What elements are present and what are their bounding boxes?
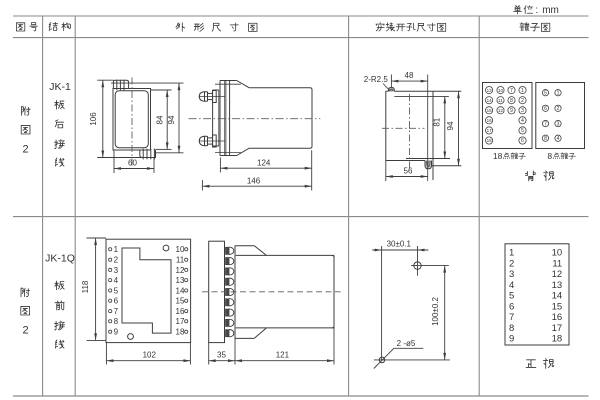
svg-text:60: 60 <box>128 159 137 168</box>
svg-text:4: 4 <box>521 118 524 124</box>
svg-text:1: 1 <box>557 90 560 96</box>
svg-text:16: 16 <box>552 312 563 323</box>
svg-text:10: 10 <box>176 245 185 254</box>
svg-text:5: 5 <box>509 291 514 302</box>
svg-text:9: 9 <box>510 108 513 114</box>
svg-text:4: 4 <box>509 280 514 291</box>
svg-text:17: 17 <box>487 128 493 133</box>
svg-text:1: 1 <box>509 248 514 259</box>
svg-text:1: 1 <box>521 88 524 94</box>
svg-text:12: 12 <box>176 266 185 275</box>
svg-text:2-R2.5: 2-R2.5 <box>364 75 389 84</box>
svg-text:13: 13 <box>552 280 563 291</box>
svg-text:35: 35 <box>217 351 226 360</box>
svg-text:17: 17 <box>552 323 563 334</box>
svg-text:11: 11 <box>552 258 562 269</box>
svg-text:121: 121 <box>276 351 290 360</box>
svg-text::: : <box>535 5 538 16</box>
svg-text:10: 10 <box>498 88 504 93</box>
svg-text:8: 8 <box>114 317 119 326</box>
svg-text:10: 10 <box>552 248 563 259</box>
svg-text:6: 6 <box>544 106 547 112</box>
svg-text:8: 8 <box>510 98 513 104</box>
svg-text:3: 3 <box>557 121 560 127</box>
svg-text:102: 102 <box>143 351 157 360</box>
svg-text:84: 84 <box>155 115 164 124</box>
svg-text:7: 7 <box>510 88 513 94</box>
svg-text:124: 124 <box>257 158 271 167</box>
svg-text:5: 5 <box>521 128 524 134</box>
svg-text:56: 56 <box>404 167 413 176</box>
svg-text:106: 106 <box>89 112 98 126</box>
svg-text:15: 15 <box>176 297 185 306</box>
svg-text:30±0.1: 30±0.1 <box>387 240 412 249</box>
svg-text:2: 2 <box>509 258 514 269</box>
svg-text:14: 14 <box>487 98 493 103</box>
svg-text:11: 11 <box>176 256 185 265</box>
svg-text:18: 18 <box>493 151 503 161</box>
svg-text:9: 9 <box>509 334 514 345</box>
svg-text:4: 4 <box>114 276 119 285</box>
svg-text:7: 7 <box>509 312 514 323</box>
svg-text:JK-1Q: JK-1Q <box>45 253 75 265</box>
svg-text:2: 2 <box>521 98 524 104</box>
svg-text:146: 146 <box>247 176 261 185</box>
svg-text:14: 14 <box>552 291 563 302</box>
svg-text:5: 5 <box>114 286 119 295</box>
svg-text:1: 1 <box>114 245 119 254</box>
svg-text:8: 8 <box>544 136 547 142</box>
svg-text:3: 3 <box>509 269 514 280</box>
svg-text:18: 18 <box>487 138 493 143</box>
svg-text:5: 5 <box>544 90 547 96</box>
svg-text:2 -ø5: 2 -ø5 <box>397 339 416 348</box>
svg-text:48: 48 <box>405 71 414 80</box>
svg-text:6: 6 <box>509 301 514 312</box>
svg-text:6: 6 <box>521 138 524 144</box>
svg-text:15: 15 <box>487 108 493 113</box>
svg-text:7: 7 <box>114 307 119 316</box>
svg-text:16: 16 <box>176 307 185 316</box>
svg-text:6: 6 <box>114 297 119 306</box>
svg-text:8: 8 <box>509 323 514 334</box>
svg-text:100±0.2: 100±0.2 <box>431 297 440 326</box>
svg-text:3: 3 <box>114 266 119 275</box>
svg-text:118: 118 <box>81 280 90 293</box>
svg-text:2: 2 <box>23 325 29 337</box>
svg-text:18: 18 <box>552 334 563 345</box>
svg-text:JK-1: JK-1 <box>49 81 71 93</box>
svg-text:4: 4 <box>557 136 560 142</box>
svg-text:mm: mm <box>542 5 559 16</box>
svg-text:8: 8 <box>547 151 552 161</box>
svg-text:2: 2 <box>114 256 119 265</box>
svg-text:2: 2 <box>557 106 560 112</box>
svg-text:13: 13 <box>487 88 493 93</box>
svg-text:18: 18 <box>176 328 185 337</box>
svg-text:2: 2 <box>23 144 29 156</box>
svg-text:94: 94 <box>167 115 176 124</box>
svg-text:14: 14 <box>176 286 185 295</box>
svg-text:11: 11 <box>498 98 503 103</box>
svg-text:15: 15 <box>552 301 563 312</box>
svg-text:16: 16 <box>487 118 493 123</box>
svg-text:7: 7 <box>544 121 547 127</box>
svg-text:9: 9 <box>114 328 119 337</box>
svg-text:12: 12 <box>552 269 563 280</box>
svg-text:13: 13 <box>176 276 185 285</box>
svg-text:17: 17 <box>176 317 185 326</box>
svg-text:3: 3 <box>521 108 524 114</box>
svg-text:12: 12 <box>498 108 504 113</box>
svg-text:81: 81 <box>433 117 442 126</box>
svg-text:94: 94 <box>446 121 455 130</box>
